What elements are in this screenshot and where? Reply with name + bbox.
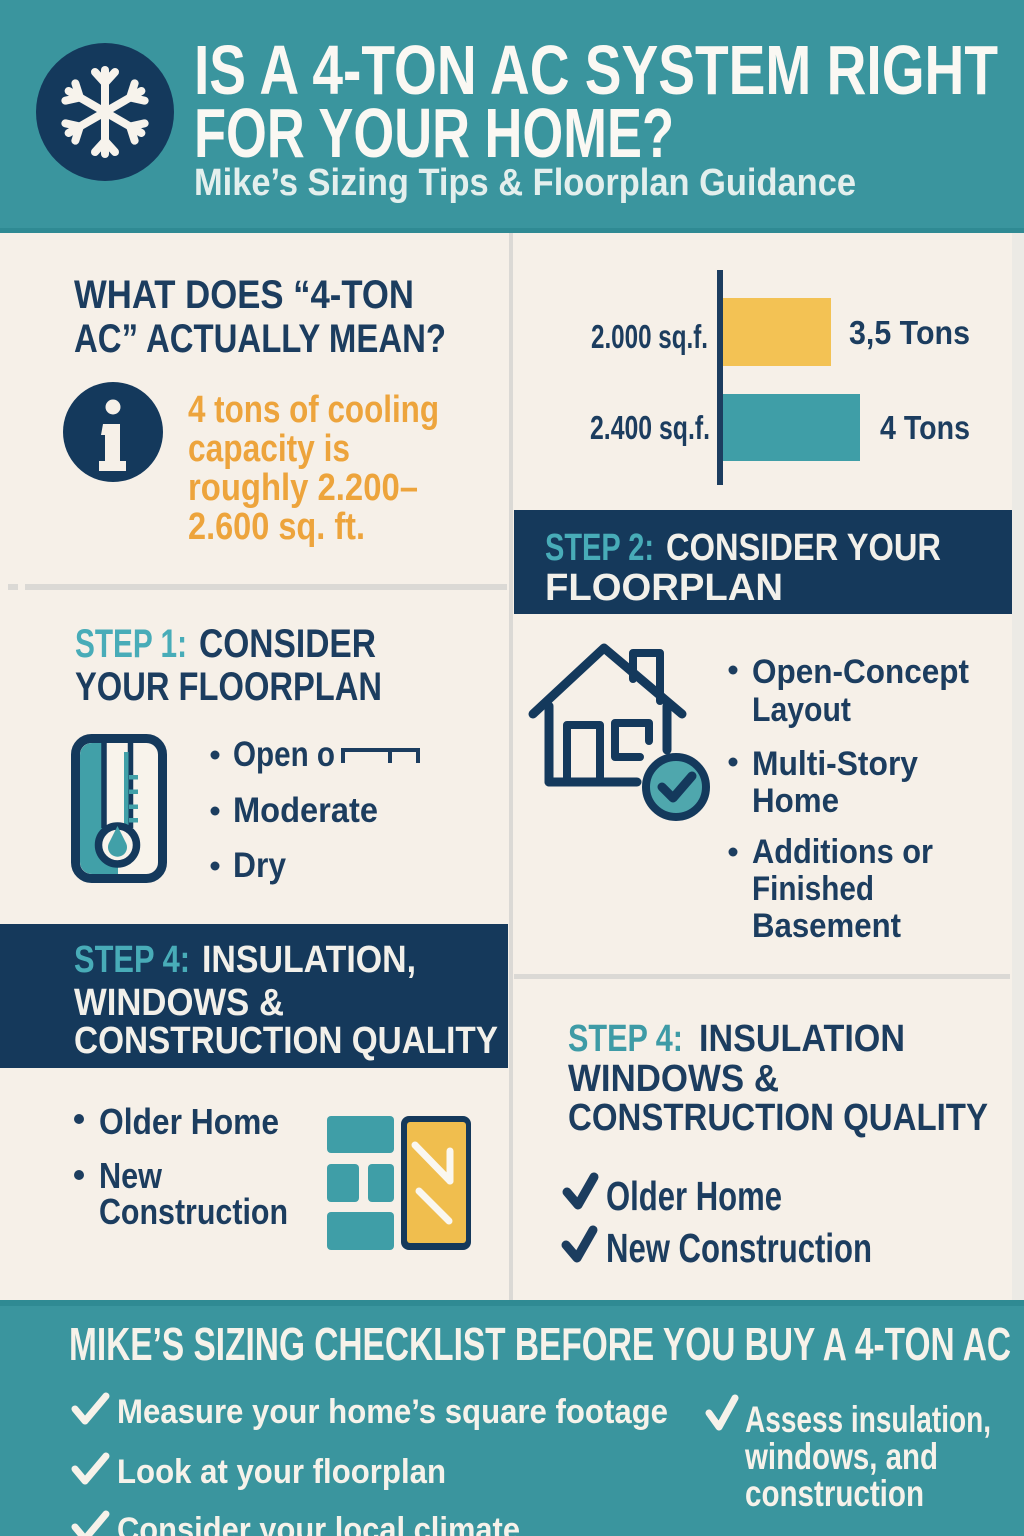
svg-text:Home: Home	[752, 782, 839, 820]
svg-text:2.400 sq.f.: 2.400 sq.f.	[590, 409, 710, 446]
svg-text:2.600 sq. ft.: 2.600 sq. ft.	[188, 506, 365, 548]
svg-text:MIKE’S SIZING CHECKLIST BEFORE: MIKE’S SIZING CHECKLIST BEFORE YOU BUY A…	[69, 1318, 1011, 1370]
svg-text:WINDOWS &: WINDOWS &	[74, 982, 284, 1024]
svg-text:INSULATION: INSULATION	[699, 1018, 905, 1060]
svg-text:Additions or: Additions or	[752, 833, 933, 871]
svg-text:construction: construction	[745, 1473, 924, 1514]
svg-text:STEP 1:: STEP 1:	[75, 622, 187, 666]
svg-text:Open-Concept: Open-Concept	[752, 653, 969, 691]
svg-text:AC” ACTUALLY MEAN?: AC” ACTUALLY MEAN?	[74, 317, 446, 361]
svg-text:FLOORPLAN: FLOORPLAN	[545, 567, 783, 609]
svg-text:windows, and: windows, and	[744, 1436, 938, 1477]
svg-text:Mike’s Sizing Tips & Floorplan: Mike’s Sizing Tips & Floorplan Guidance	[194, 162, 856, 204]
svg-text:Moderate: Moderate	[233, 791, 378, 830]
svg-text:roughly 2.200–: roughly 2.200–	[188, 467, 418, 509]
svg-text:New: New	[99, 1155, 163, 1196]
svg-text:Layout: Layout	[752, 691, 851, 729]
svg-text:Basement: Basement	[752, 907, 901, 945]
svg-text:STEP 4:: STEP 4:	[568, 1018, 683, 1060]
svg-text:CONSTRUCTION QUALITY: CONSTRUCTION QUALITY	[568, 1097, 988, 1139]
svg-text:Consider your local climate: Consider your local climate	[117, 1511, 520, 1536]
svg-text:STEP 2:: STEP 2:	[545, 527, 654, 569]
svg-text:Assess insulation,: Assess insulation,	[745, 1399, 991, 1440]
svg-text:WHAT DOES “4-TON: WHAT DOES “4-TON	[74, 273, 414, 317]
svg-text:Open o: Open o	[233, 735, 335, 774]
svg-text:Look at your floorplan: Look at your floorplan	[117, 1453, 446, 1491]
svg-text:Measure your home’s square foo: Measure your home’s square footage	[117, 1393, 668, 1431]
svg-text:STEP 4:: STEP 4:	[74, 939, 190, 981]
svg-text:3,5 Tons: 3,5 Tons	[849, 314, 970, 351]
svg-text:YOUR FLOORPLAN: YOUR FLOORPLAN	[75, 665, 382, 709]
svg-text:Older Home: Older Home	[99, 1101, 279, 1142]
svg-text:New Construction: New Construction	[606, 1225, 872, 1271]
svg-text:Multi-Story: Multi-Story	[752, 745, 918, 783]
svg-text:Construction: Construction	[99, 1191, 288, 1232]
svg-text:WINDOWS &: WINDOWS &	[568, 1058, 779, 1100]
svg-text:CONSIDER YOUR: CONSIDER YOUR	[666, 527, 941, 569]
svg-text:Older Home: Older Home	[606, 1173, 782, 1219]
svg-text:4 Tons: 4 Tons	[880, 409, 970, 446]
svg-text:INSULATION,: INSULATION,	[202, 939, 416, 981]
svg-text:Dry: Dry	[233, 846, 286, 885]
svg-text:FOR YOUR HOME?: FOR YOUR HOME?	[194, 94, 674, 172]
svg-text:Finished: Finished	[752, 870, 874, 908]
svg-text:2.000 sq.f.: 2.000 sq.f.	[591, 318, 708, 355]
svg-text:CONSIDER: CONSIDER	[199, 622, 376, 666]
svg-text:CONSTRUCTION QUALITY: CONSTRUCTION QUALITY	[74, 1020, 498, 1062]
svg-text:capacity is: capacity is	[188, 428, 350, 470]
svg-text:4 tons of cooling: 4 tons of cooling	[188, 389, 439, 431]
